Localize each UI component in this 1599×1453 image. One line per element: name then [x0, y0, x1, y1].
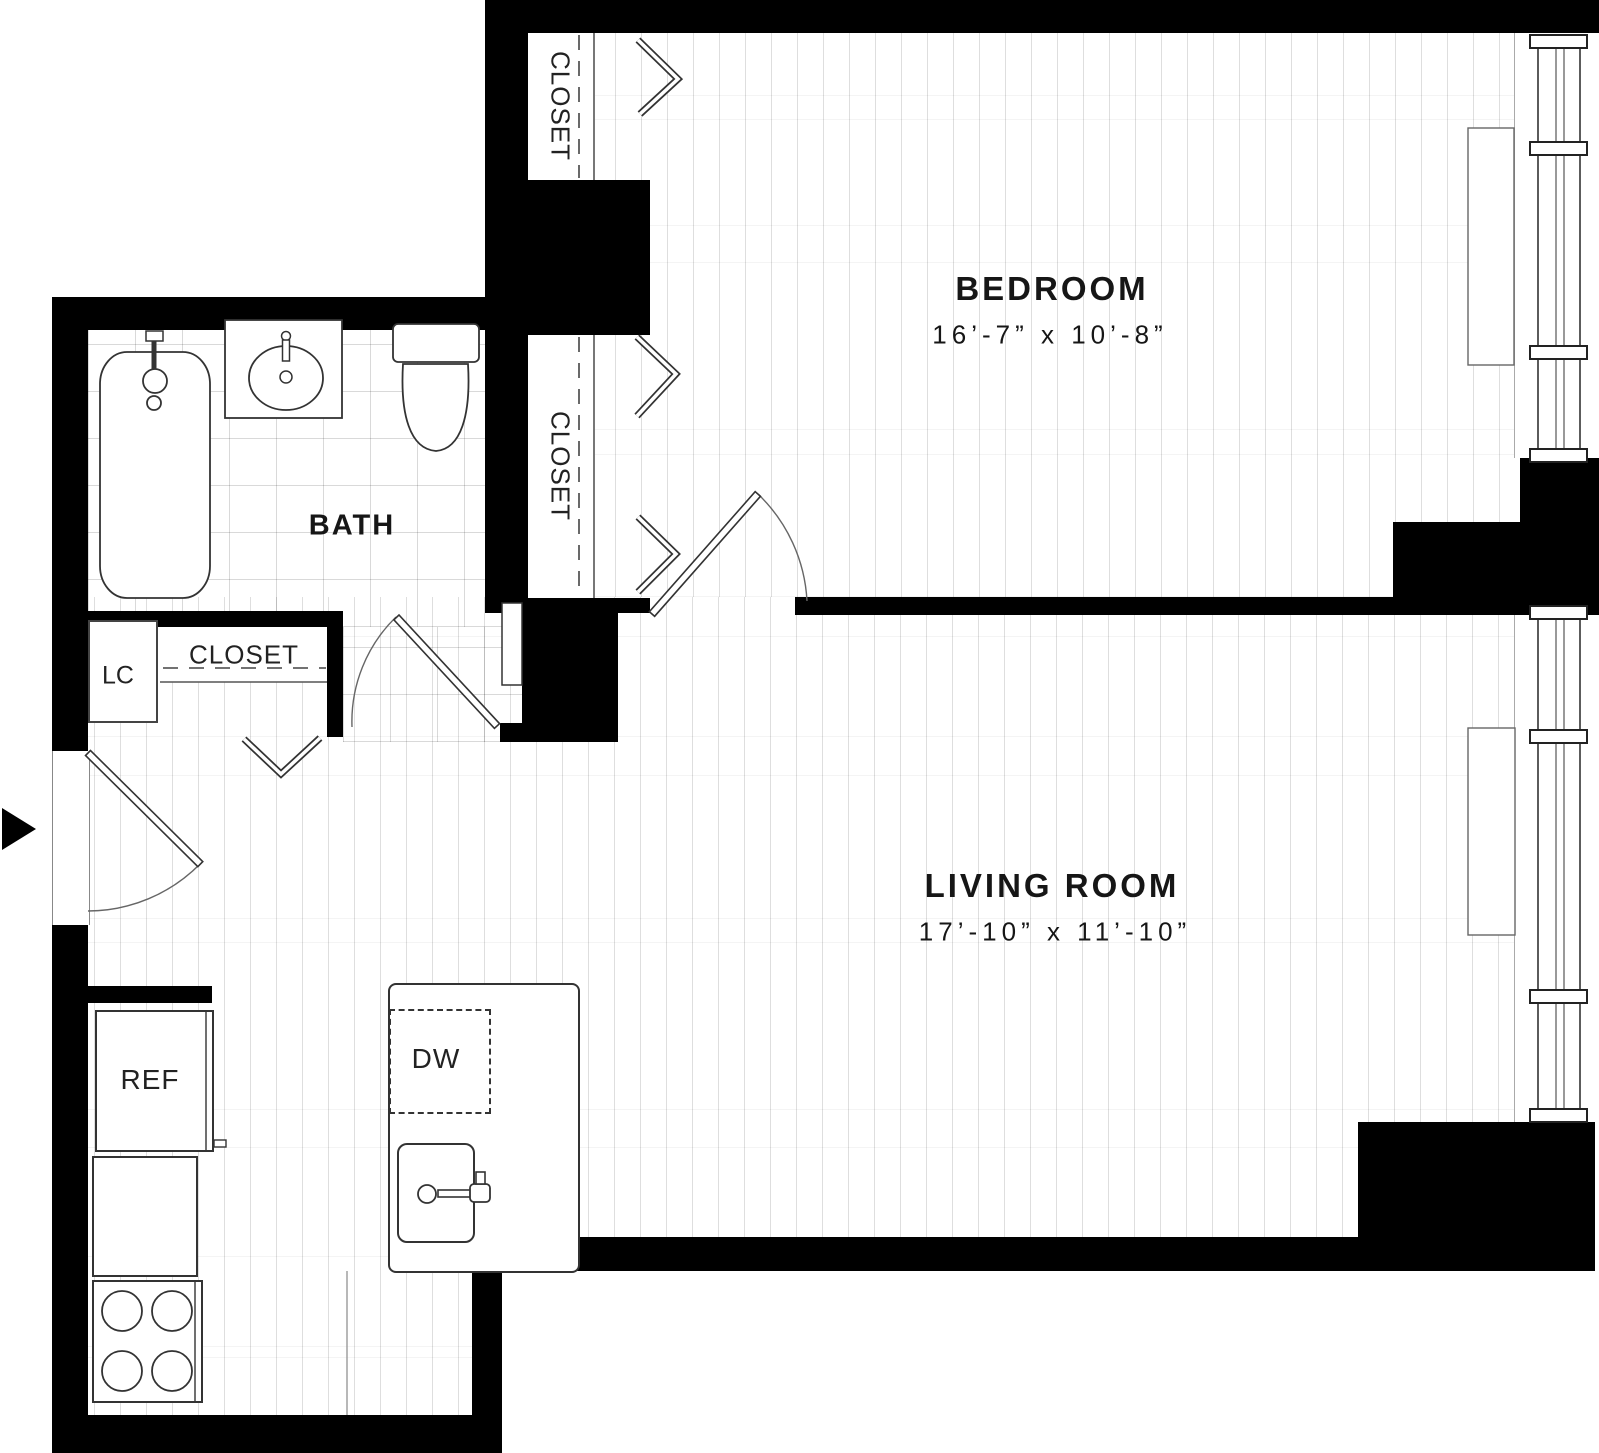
- wall-kitchen-bottom: [52, 1415, 502, 1453]
- entry-closet-label: CLOSET: [189, 640, 299, 671]
- kitchen-sink-box: [397, 1143, 475, 1243]
- wall-divider-step2: [1520, 458, 1599, 522]
- wall-closet-bottom: [485, 598, 650, 613]
- living-room-label: LIVING ROOM: [925, 867, 1180, 905]
- living-hall-floor: [88, 597, 1514, 1237]
- bedroom-window-sill: [1514, 33, 1599, 458]
- linen-cabinet-label: LC: [102, 662, 134, 691]
- wall-between-closets: [485, 180, 650, 335]
- bath-floor-tiles: [88, 330, 522, 627]
- wall-bedroom-living-divider: [795, 597, 1599, 615]
- entry-door-opening: [52, 751, 90, 925]
- wall-left-lower: [52, 923, 88, 1415]
- wall-top: [485, 0, 1599, 33]
- wall-divider-step1: [1393, 522, 1599, 597]
- wall-living-bottom: [472, 1237, 1595, 1271]
- wall-hall-block: [522, 613, 618, 742]
- bedroom-label: BEDROOM: [955, 270, 1148, 308]
- wall-kitchen-stub: [88, 986, 212, 1003]
- wall-bath-jamb: [327, 611, 343, 737]
- stove-box: [92, 1280, 203, 1403]
- kitchen-counter-left: [92, 1156, 198, 1277]
- entry-arrow: [2, 808, 36, 850]
- wall-hall-block-step: [500, 723, 522, 742]
- wall-left-upper: [52, 297, 88, 753]
- bedroom-dimensions: 16’-7” x 10’-8”: [932, 320, 1167, 351]
- bath-entry-floor-tiles: [343, 627, 522, 742]
- lower-closet-label: CLOSET: [545, 411, 576, 521]
- refrigerator-label: REF: [121, 1064, 180, 1096]
- dishwasher-label: DW: [412, 1043, 461, 1075]
- upper-closet-label: CLOSET: [545, 51, 576, 161]
- wall-bath-top: [52, 297, 490, 330]
- living-window-sill: [1514, 615, 1599, 1122]
- living-room-dimensions: 17’-10” x 11’-10”: [919, 917, 1191, 948]
- floor-plan: BEDROOM 16’-7” x 10’-8” LIVING ROOM 17’-…: [0, 0, 1599, 1453]
- bath-label: BATH: [309, 510, 395, 543]
